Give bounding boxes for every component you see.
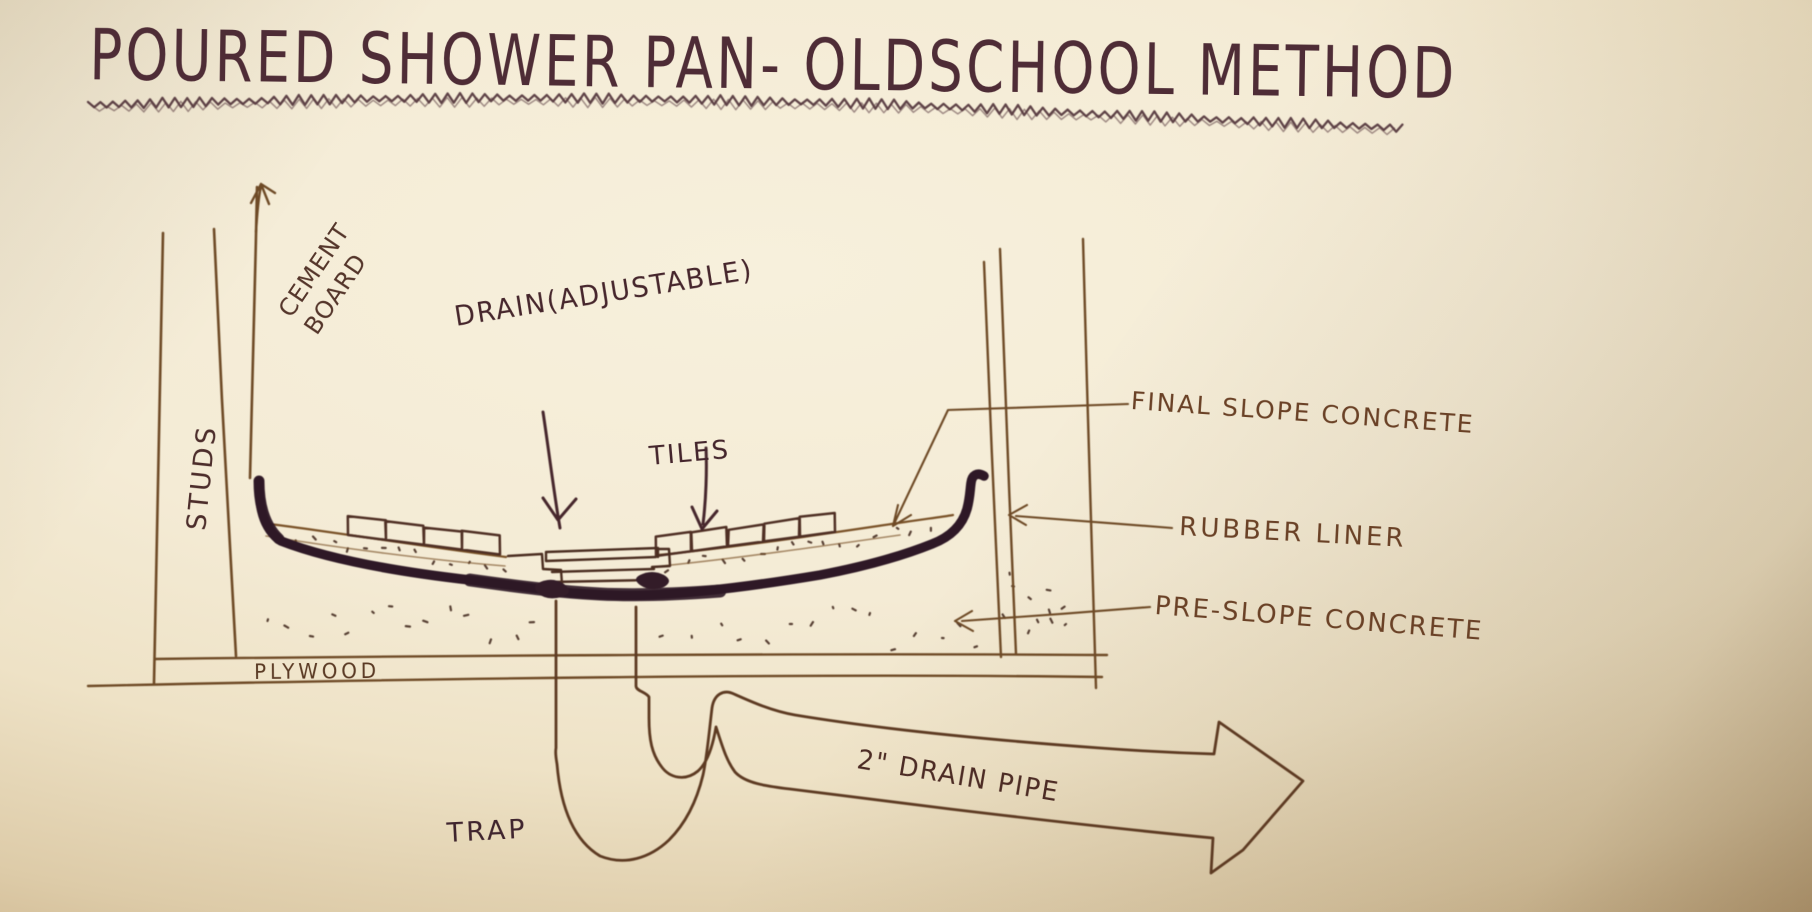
- pre-slope-leader: [955, 607, 1150, 631]
- annotation-arrows: [543, 412, 717, 529]
- trap-and-drain-pipe-outline: [556, 601, 1303, 873]
- stud-outer-line: [154, 233, 163, 683]
- right-wall-lines: [984, 239, 1096, 688]
- plywood-lines: [88, 654, 1107, 686]
- paper-sheet: POURED SHOWER PAN- OLDSCHOOL METHOD STUD…: [0, 0, 1812, 912]
- drain-arrow-icon: [543, 412, 576, 528]
- rubber-liner-line: [259, 474, 984, 595]
- cement-board-arrow-icon: [251, 184, 275, 232]
- label-plywood: PLYWOOD: [254, 659, 380, 684]
- label-trap: TRAP: [446, 814, 528, 849]
